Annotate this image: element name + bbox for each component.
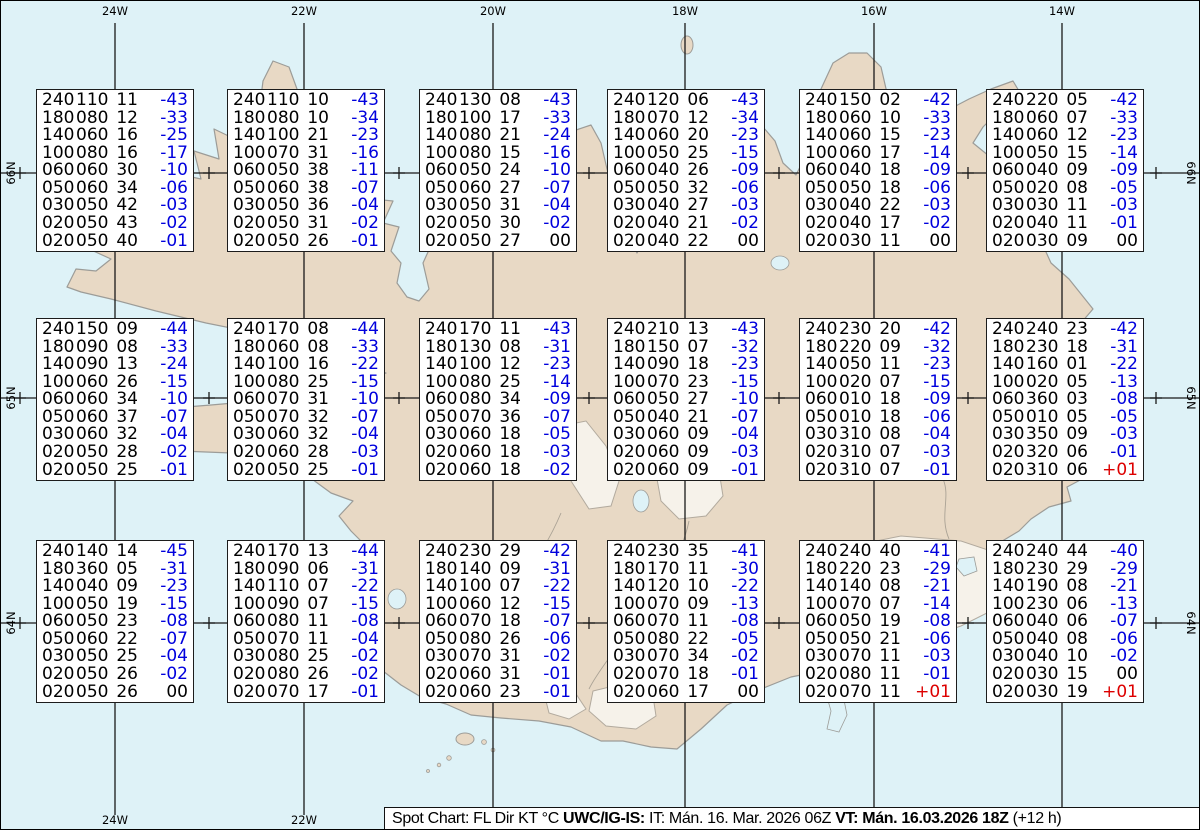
wind-direction: 050 <box>76 215 110 232</box>
flight-level: 020 <box>425 444 459 461</box>
spot-line: 0200502700 <box>425 233 571 250</box>
wind-direction: 310 <box>1026 462 1060 479</box>
wind-speed-kt: 18 <box>683 356 709 373</box>
temperature-c: -43 <box>721 92 759 109</box>
wind-speed-kt: 09 <box>683 462 709 479</box>
flight-level: 140 <box>613 578 647 595</box>
wind-speed-kt: 19 <box>1062 684 1088 701</box>
temperature-c: 00 <box>721 684 759 701</box>
wind-direction: 060 <box>839 127 873 144</box>
temperature-c: 00 <box>150 684 188 701</box>
wind-direction: 210 <box>647 321 681 338</box>
wind-direction: 100 <box>459 356 493 373</box>
spot-line: 24022005-42 <box>992 92 1138 109</box>
wind-direction: 090 <box>76 356 110 373</box>
footer-text-bold: UWC/IG-IS: <box>563 810 645 828</box>
temperature-c: -23 <box>913 356 951 373</box>
wind-direction: 110 <box>267 92 301 109</box>
flight-level: 020 <box>233 684 267 701</box>
spot-line: 02005026-02 <box>42 666 188 683</box>
wind-speed-kt: 44 <box>1062 543 1088 560</box>
temperature-c: -02 <box>341 666 379 683</box>
wind-speed-kt: 18 <box>683 666 709 683</box>
spot-line: 02005030-02 <box>425 215 571 232</box>
flight-level: 060 <box>992 613 1026 630</box>
spot-line: 02005025-01 <box>233 462 379 479</box>
wind-speed-kt: 26 <box>112 666 138 683</box>
flight-level: 020 <box>992 684 1026 701</box>
flight-level: 140 <box>613 356 647 373</box>
spot-box: 24011010-4318008010-3414010021-231000703… <box>227 89 385 252</box>
spot-line: 02006023-01 <box>425 684 571 701</box>
spot-line: 02031006+01 <box>992 462 1138 479</box>
temperature-c: -01 <box>533 684 571 701</box>
wind-speed-kt: 25 <box>112 462 138 479</box>
temperature-c: -21 <box>913 578 951 595</box>
temperature-c: -08 <box>1100 391 1138 408</box>
spot-line: 02007011+01 <box>805 684 951 701</box>
temperature-c: -24 <box>150 356 188 373</box>
wind-speed-kt: 17 <box>875 215 901 232</box>
flight-level: 020 <box>805 215 839 232</box>
temperature-c: -22 <box>721 578 759 595</box>
flight-level: 140 <box>805 356 839 373</box>
flight-level: 240 <box>233 543 267 560</box>
flight-level: 140 <box>233 356 267 373</box>
temperature-c: -02 <box>533 462 571 479</box>
flight-level: 240 <box>613 92 647 109</box>
flight-level: 020 <box>805 684 839 701</box>
wind-direction: 060 <box>76 391 110 408</box>
wind-direction: 320 <box>1026 444 1060 461</box>
spot-line: 24021013-43 <box>613 321 759 338</box>
wind-speed-kt: 11 <box>1062 215 1088 232</box>
flight-level: 060 <box>805 613 839 630</box>
wind-direction: 070 <box>459 613 493 630</box>
flight-level: 020 <box>425 462 459 479</box>
wind-direction: 060 <box>459 444 493 461</box>
flight-level: 020 <box>233 215 267 232</box>
wind-direction: 060 <box>459 684 493 701</box>
spot-line: 02006018-03 <box>425 444 571 461</box>
wind-speed-kt: 06 <box>1062 462 1088 479</box>
temperature-c: 00 <box>1100 233 1138 250</box>
lake-thorisvatn <box>633 490 649 512</box>
spot-box: 24023020-4218022009-3214005011-231000200… <box>799 318 957 481</box>
flight-level: 060 <box>613 391 647 408</box>
flight-level: 020 <box>233 444 267 461</box>
wind-speed-kt: 24 <box>495 162 521 179</box>
flight-level: 140 <box>613 127 647 144</box>
wind-direction: 050 <box>76 233 110 250</box>
temperature-c: -01 <box>913 666 951 683</box>
flight-level: 060 <box>805 391 839 408</box>
wind-speed-kt: 11 <box>495 321 521 338</box>
flight-level: 060 <box>992 162 1026 179</box>
longitude-label-top: 20W <box>480 4 506 18</box>
wind-speed-kt: 15 <box>1062 666 1088 683</box>
temperature-c: -23 <box>341 127 379 144</box>
flight-level: 020 <box>613 215 647 232</box>
wind-direction: 050 <box>459 162 493 179</box>
wind-direction: 050 <box>76 684 110 701</box>
temperature-c: -03 <box>721 444 759 461</box>
wind-speed-kt: 26 <box>112 684 138 701</box>
spot-line: 02006009-03 <box>613 444 759 461</box>
wind-speed-kt: 07 <box>495 578 521 595</box>
temperature-c: -03 <box>913 444 951 461</box>
wind-direction: 060 <box>267 444 301 461</box>
spot-line: 0200301500 <box>992 666 1138 683</box>
spot-line: 06005023-08 <box>42 613 188 630</box>
wind-speed-kt: 29 <box>495 543 521 560</box>
wind-speed-kt: 15 <box>875 127 901 144</box>
flight-level: 140 <box>992 578 1026 595</box>
spot-line: 02005043-02 <box>42 215 188 232</box>
wind-direction: 150 <box>76 321 110 338</box>
wind-speed-kt: 38 <box>303 162 329 179</box>
spot-line: 24023029-42 <box>425 543 571 560</box>
wind-direction: 030 <box>1026 684 1060 701</box>
temperature-c: -01 <box>913 462 951 479</box>
wind-direction: 050 <box>267 462 301 479</box>
spot-line: 24024044-40 <box>992 543 1138 560</box>
latitude-label-left: 64N <box>4 611 18 634</box>
temperature-c: -02 <box>150 666 188 683</box>
temperature-c: -44 <box>150 321 188 338</box>
spot-line: 02006028-03 <box>233 444 379 461</box>
wind-direction: 040 <box>839 215 873 232</box>
flight-level: 020 <box>233 666 267 683</box>
wind-direction: 080 <box>267 613 301 630</box>
wind-speed-kt: 40 <box>875 543 901 560</box>
flight-level: 240 <box>425 92 459 109</box>
temperature-c: -08 <box>150 613 188 630</box>
wind-speed-kt: 18 <box>875 391 901 408</box>
temperature-c: -02 <box>721 215 759 232</box>
temperature-c: -23 <box>913 127 951 144</box>
wind-speed-kt: 18 <box>495 462 521 479</box>
flight-level: 240 <box>805 321 839 338</box>
wind-direction: 040 <box>1026 613 1060 630</box>
spot-chart-canvas: 24W24W22W22W20W20W18W18W16W16W14W14W66N6… <box>0 0 1200 830</box>
wind-speed-kt: 20 <box>683 127 709 144</box>
lake-myvatn <box>771 256 789 270</box>
wind-direction: 130 <box>459 92 493 109</box>
wind-direction: 060 <box>647 684 681 701</box>
temperature-c: -08 <box>341 613 379 630</box>
wind-speed-kt: 07 <box>303 578 329 595</box>
flight-level: 140 <box>805 578 839 595</box>
islet <box>447 756 452 761</box>
spot-box: 24023035-4118017011-3014012010-221000700… <box>607 540 765 703</box>
temperature-c: -01 <box>341 684 379 701</box>
longitude-label-top: 18W <box>672 4 698 18</box>
temperature-c: -09 <box>913 162 951 179</box>
flight-level: 240 <box>233 321 267 338</box>
wind-direction: 050 <box>267 162 301 179</box>
wind-direction: 220 <box>1026 92 1060 109</box>
wind-speed-kt: 10 <box>303 92 329 109</box>
spot-line: 14009013-24 <box>42 356 188 373</box>
temperature-c: -01 <box>721 462 759 479</box>
temperature-c: -22 <box>1100 356 1138 373</box>
longitude-label-top: 14W <box>1049 4 1075 18</box>
wind-speed-kt: 06 <box>1062 613 1088 630</box>
flight-level: 140 <box>425 127 459 144</box>
wind-direction: 060 <box>459 462 493 479</box>
spot-box: 24013008-4318010017-3314008021-241000801… <box>419 89 577 252</box>
spot-box: 24024044-4018023029-2914019008-211002300… <box>986 540 1144 703</box>
flight-level: 240 <box>613 321 647 338</box>
wind-direction: 050 <box>76 666 110 683</box>
temperature-c: 00 <box>721 233 759 250</box>
temperature-c: -01 <box>721 666 759 683</box>
spot-line: 02031007-01 <box>805 462 951 479</box>
spot-line: 24012006-43 <box>613 92 759 109</box>
flight-level: 020 <box>42 462 76 479</box>
wind-direction: 170 <box>267 321 301 338</box>
temperature-c: -24 <box>533 127 571 144</box>
temperature-c: -03 <box>341 444 379 461</box>
wind-direction: 040 <box>647 162 681 179</box>
flight-level: 060 <box>42 613 76 630</box>
spot-box: 24017011-4318013008-3114010012-231000802… <box>419 318 577 481</box>
spot-line: 06001018-09 <box>805 391 951 408</box>
islet <box>437 763 441 767</box>
longitude-label-top: 16W <box>861 4 887 18</box>
spot-box: 24011011-4318008012-3314006016-251000801… <box>36 89 194 252</box>
wind-speed-kt: 09 <box>112 578 138 595</box>
temperature-c: -10 <box>150 162 188 179</box>
temperature-c: -23 <box>1100 127 1138 144</box>
latitude-label-right: 65N <box>1184 386 1198 409</box>
temperature-c: -01 <box>1100 215 1138 232</box>
wind-speed-kt: 19 <box>875 613 901 630</box>
wind-direction: 070 <box>647 666 681 683</box>
temperature-c: -07 <box>533 613 571 630</box>
spot-line: 02004017-02 <box>805 215 951 232</box>
lake-thingvallavatn <box>388 589 406 609</box>
flight-level: 240 <box>42 543 76 560</box>
wind-direction: 060 <box>76 162 110 179</box>
temperature-c: -10 <box>341 391 379 408</box>
wind-speed-kt: 20 <box>875 321 901 338</box>
temperature-c: -43 <box>533 321 571 338</box>
temperature-c: -43 <box>721 321 759 338</box>
temperature-c: -22 <box>533 578 571 595</box>
flight-level: 060 <box>425 613 459 630</box>
wind-speed-kt: 26 <box>303 666 329 683</box>
spot-line: 02004021-02 <box>613 215 759 232</box>
flight-level: 140 <box>805 127 839 144</box>
latitude-label-right: 64N <box>1184 611 1198 634</box>
wind-speed-kt: 03 <box>1062 391 1088 408</box>
flight-level: 240 <box>992 543 1026 560</box>
flight-level: 060 <box>992 391 1026 408</box>
flight-level: 140 <box>425 578 459 595</box>
spot-line: 06005038-11 <box>233 162 379 179</box>
flight-level: 020 <box>992 462 1026 479</box>
wind-direction: 040 <box>839 162 873 179</box>
wind-speed-kt: 40 <box>112 233 138 250</box>
temperature-c: -10 <box>533 162 571 179</box>
wind-speed-kt: 11 <box>875 666 901 683</box>
temperature-c: -10 <box>150 391 188 408</box>
temperature-c: -23 <box>150 578 188 595</box>
temperature-c: -01 <box>341 233 379 250</box>
spot-line: 02008011-01 <box>805 666 951 683</box>
flight-level: 020 <box>992 215 1026 232</box>
flight-level: 020 <box>42 233 76 250</box>
wind-speed-kt: 17 <box>303 684 329 701</box>
spot-line: 06007018-07 <box>425 613 571 630</box>
spot-line: 02007017-01 <box>233 684 379 701</box>
spot-line: 24017011-43 <box>425 321 571 338</box>
temperature-c: -22 <box>341 356 379 373</box>
longitude-label-bottom: 24W <box>102 813 128 827</box>
spot-box: 24023029-4218014009-3114010007-221000601… <box>419 540 577 703</box>
spot-line: 0200502600 <box>42 684 188 701</box>
flight-level: 020 <box>805 444 839 461</box>
wind-speed-kt: 30 <box>112 162 138 179</box>
wind-direction: 110 <box>76 92 110 109</box>
spot-line: 14012010-22 <box>613 578 759 595</box>
wind-speed-kt: 34 <box>112 391 138 408</box>
wind-speed-kt: 31 <box>495 666 521 683</box>
temperature-c: -42 <box>1100 321 1138 338</box>
spot-box: 24022005-4218006007-3314006012-231000501… <box>986 89 1144 252</box>
spot-line: 02005026-01 <box>233 233 379 250</box>
spot-line: 06008034-09 <box>425 391 571 408</box>
wind-direction: 060 <box>647 127 681 144</box>
flight-level: 020 <box>425 684 459 701</box>
flight-level: 020 <box>992 666 1026 683</box>
spot-line: 0200300900 <box>992 233 1138 250</box>
wind-speed-kt: 14 <box>112 543 138 560</box>
spot-line: 02031007-03 <box>805 444 951 461</box>
spot-line: 02032006-01 <box>992 444 1138 461</box>
wind-direction: 030 <box>1026 233 1060 250</box>
spot-line: 06005019-08 <box>805 613 951 630</box>
wind-speed-kt: 23 <box>1062 321 1088 338</box>
wind-direction: 040 <box>647 215 681 232</box>
wind-direction: 050 <box>459 215 493 232</box>
spot-line: 02006018-02 <box>425 462 571 479</box>
wind-speed-kt: 07 <box>875 444 901 461</box>
spot-line: 24017008-44 <box>233 321 379 338</box>
flight-level: 060 <box>42 391 76 408</box>
wind-speed-kt: 05 <box>1062 92 1088 109</box>
flight-level: 020 <box>992 233 1026 250</box>
flight-level: 060 <box>613 613 647 630</box>
wind-direction: 050 <box>839 613 873 630</box>
temperature-c: -23 <box>721 356 759 373</box>
longitude-label-top: 22W <box>291 4 317 18</box>
temperature-c: -43 <box>341 92 379 109</box>
wind-direction: 080 <box>459 391 493 408</box>
wind-speed-kt: 11 <box>875 233 901 250</box>
flight-level: 240 <box>805 543 839 560</box>
wind-direction: 060 <box>647 462 681 479</box>
temperature-c: -02 <box>533 215 571 232</box>
flight-level: 240 <box>42 92 76 109</box>
spot-line: 02006031-01 <box>425 666 571 683</box>
temperature-c: -44 <box>341 321 379 338</box>
spot-box: 24015009-4418009008-3314009013-241000602… <box>36 318 194 481</box>
wind-speed-kt: 22 <box>683 233 709 250</box>
spot-box: 24021013-4318015007-3214009018-231000702… <box>607 318 765 481</box>
temperature-c: -02 <box>150 215 188 232</box>
wind-direction: 050 <box>76 444 110 461</box>
spot-line: 02005040-01 <box>42 233 188 250</box>
wind-speed-kt: 30 <box>495 215 521 232</box>
wind-speed-kt: 08 <box>875 578 901 595</box>
wind-speed-kt: 18 <box>495 444 521 461</box>
islet <box>482 740 487 745</box>
spot-line: 0200601700 <box>613 684 759 701</box>
wind-speed-kt: 16 <box>112 127 138 144</box>
spot-line: 14009018-23 <box>613 356 759 373</box>
wind-direction: 050 <box>76 613 110 630</box>
wind-speed-kt: 23 <box>112 613 138 630</box>
temperature-c: -42 <box>1100 92 1138 109</box>
flight-level: 060 <box>425 162 459 179</box>
wind-speed-kt: 11 <box>875 356 901 373</box>
temperature-c: -43 <box>150 92 188 109</box>
temperature-c: -45 <box>150 543 188 560</box>
wind-direction: 050 <box>76 462 110 479</box>
wind-direction: 230 <box>839 321 873 338</box>
temperature-c: -42 <box>533 543 571 560</box>
wind-speed-kt: 21 <box>683 215 709 232</box>
wind-direction: 310 <box>839 462 873 479</box>
spot-line: 0200402200 <box>613 233 759 250</box>
wind-speed-kt: 07 <box>875 462 901 479</box>
flight-level: 140 <box>42 356 76 373</box>
flight-level: 140 <box>992 356 1026 373</box>
wind-direction: 080 <box>459 127 493 144</box>
wind-speed-kt: 09 <box>683 444 709 461</box>
spot-line: 24024040-41 <box>805 543 951 560</box>
flight-level: 060 <box>613 162 647 179</box>
wind-speed-kt: 18 <box>495 613 521 630</box>
flight-level: 140 <box>233 578 267 595</box>
longitude-label-top: 24W <box>102 4 128 18</box>
wind-speed-kt: 13 <box>303 543 329 560</box>
spot-line: 24024023-42 <box>992 321 1138 338</box>
temperature-c: -11 <box>341 162 379 179</box>
footer-text-bold: VT: Mán. 16.03.2026 18Z <box>835 810 1008 828</box>
wind-direction: 240 <box>1026 543 1060 560</box>
wind-speed-kt: 06 <box>1062 444 1088 461</box>
temperature-c: -41 <box>721 543 759 560</box>
spot-line: 06005027-10 <box>613 391 759 408</box>
temperature-c: -01 <box>341 462 379 479</box>
temperature-c: -01 <box>150 233 188 250</box>
grimsey-island <box>681 36 693 54</box>
temperature-c: +01 <box>1100 684 1138 701</box>
spot-line: 02008026-02 <box>233 666 379 683</box>
spot-box: 24017008-4418006008-3314010016-221000802… <box>227 318 385 481</box>
wind-direction: 360 <box>1026 391 1060 408</box>
spot-line: 06004009-09 <box>992 162 1138 179</box>
spot-line: 06006030-10 <box>42 162 188 179</box>
wind-direction: 040 <box>1026 215 1060 232</box>
spot-line: 14016001-22 <box>992 356 1138 373</box>
spot-line: 14019008-21 <box>992 578 1138 595</box>
spot-line: 02006009-01 <box>613 462 759 479</box>
